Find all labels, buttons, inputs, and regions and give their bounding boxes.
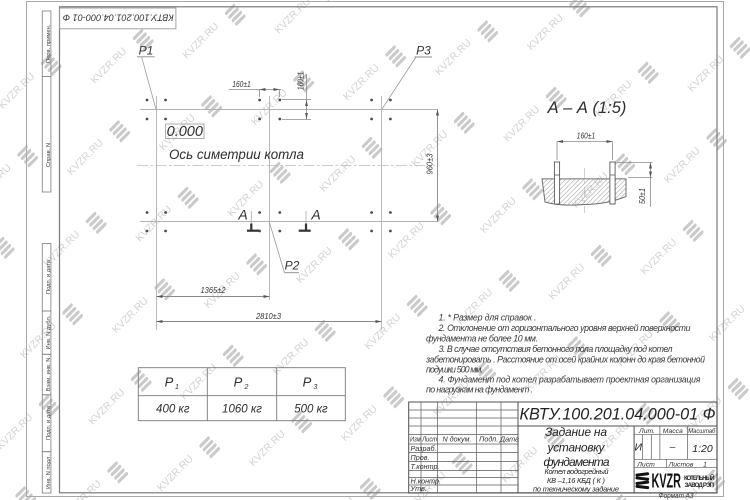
svg-text:Взам. инв. N: Взам. инв. N bbox=[46, 358, 52, 392]
svg-text:KVZR.RU: KVZR.RU bbox=[0, 411, 35, 452]
svg-text:Масса: Масса bbox=[663, 428, 683, 435]
svg-text:160±1: 160±1 bbox=[297, 72, 306, 91]
svg-text:1. * Размер для справок .: 1. * Размер для справок . bbox=[439, 312, 537, 322]
svg-text:KVZR.RU: KVZR.RU bbox=[662, 145, 703, 186]
svg-text:1: 1 bbox=[703, 461, 707, 468]
svg-text:Подп.: Подп. bbox=[479, 435, 498, 444]
svg-text:Перв. примен.: Перв. примен. bbox=[46, 24, 52, 63]
svg-text:KVZR: KVZR bbox=[652, 470, 682, 492]
svg-text:P1: P1 bbox=[139, 44, 154, 58]
svg-text:500 кг: 500 кг bbox=[294, 404, 328, 416]
svg-text:Р: Р bbox=[234, 375, 243, 390]
svg-text:KVZR.RU: KVZR.RU bbox=[88, 45, 129, 86]
svg-text:KVZR.RU: KVZR.RU bbox=[272, 0, 313, 36]
svg-text:P3: P3 bbox=[416, 44, 431, 58]
svg-text:KVZR.RU: KVZR.RU bbox=[362, 311, 403, 352]
svg-text:Справ. N: Справ. N bbox=[46, 143, 52, 167]
svg-text:установку: установку bbox=[547, 440, 606, 454]
svg-text:KVZR.RU: KVZR.RU bbox=[433, 37, 474, 78]
svg-text:Формат А3: Формат А3 bbox=[659, 491, 695, 500]
svg-text:2810±3: 2810±3 bbox=[255, 312, 281, 321]
svg-text:Ось симетрии котла: Ось симетрии котла bbox=[169, 147, 304, 162]
svg-text:по нагрузкам на фундамент .: по нагрузкам на фундамент . bbox=[426, 384, 533, 394]
svg-text:Подп. и дата: Подп. и дата bbox=[46, 405, 52, 440]
svg-text:KVZR.RU: KVZR.RU bbox=[155, 453, 196, 494]
svg-text:KVZR.RU: KVZR.RU bbox=[525, 12, 566, 53]
svg-text:А: А bbox=[310, 207, 320, 223]
svg-text:Изм.Лист: Изм.Лист bbox=[410, 435, 437, 444]
svg-text:KVZR.RU: KVZR.RU bbox=[0, 70, 37, 111]
svg-text:4. Фундамент под котел разраб: 4. Фундамент под котел разрабатывает про… bbox=[439, 374, 701, 384]
svg-text:Инв. N подл.: Инв. N подл. bbox=[46, 455, 52, 489]
svg-text:Листов: Листов bbox=[668, 461, 694, 468]
svg-text:Масштаб: Масштаб bbox=[688, 427, 716, 435]
svg-text:А: А bbox=[237, 207, 247, 223]
svg-text:KVZR.RU: KVZR.RU bbox=[133, 203, 174, 244]
svg-text:0.000: 0.000 bbox=[167, 124, 203, 140]
svg-text:1: 1 bbox=[175, 384, 179, 391]
svg-text:КВТУ.100.201.04.000-01 Ф: КВТУ.100.201.04.000-01 Ф bbox=[520, 405, 716, 424]
svg-text:КОТЕЛЬНЫЙ: КОТЕЛЬНЫЙ bbox=[684, 474, 715, 482]
svg-text:KVZR.RU: KVZR.RU bbox=[341, 62, 382, 103]
svg-text:Р: Р bbox=[303, 375, 312, 390]
svg-text:KVZR.RU: KVZR.RU bbox=[317, 153, 358, 194]
svg-text:KVZR.RU: KVZR.RU bbox=[685, 53, 726, 94]
svg-text:KVZR.RU: KVZR.RU bbox=[18, 320, 59, 361]
svg-text:KVZR.RU: KVZR.RU bbox=[478, 195, 519, 236]
svg-text:KVZR.RU: KVZR.RU bbox=[546, 261, 587, 302]
svg-text:KVZR.RU: KVZR.RU bbox=[707, 303, 748, 344]
svg-text:Лит.: Лит. bbox=[638, 428, 655, 435]
svg-text:KVZR.RU: KVZR.RU bbox=[65, 137, 106, 178]
svg-text:Утв.: Утв. bbox=[410, 484, 427, 493]
svg-text:КВТУ.100.201.04.000-01 Ф: КВТУ.100.201.04.000-01 Ф bbox=[63, 13, 174, 23]
svg-text:фундамента не более 10 мм.: фундамента не более 10 мм. bbox=[426, 334, 538, 344]
svg-text:Разраб.: Разраб. bbox=[411, 444, 437, 453]
svg-text:KVZR.RU: KVZR.RU bbox=[386, 220, 427, 261]
svg-text:N докум.: N докум. bbox=[442, 435, 471, 444]
svg-text:по техническому задание: по техническому задание bbox=[533, 484, 619, 493]
svg-text:Дата: Дата bbox=[499, 435, 519, 444]
svg-text:–: – bbox=[669, 442, 676, 453]
svg-text:1:20: 1:20 bbox=[692, 443, 713, 455]
svg-text:Пров.: Пров. bbox=[411, 453, 430, 462]
svg-text:KVZR.RU: KVZR.RU bbox=[501, 103, 542, 144]
svg-text:160±1: 160±1 bbox=[232, 80, 251, 89]
svg-text:забетонировать . Расстояние о: забетонировать . Расстояние от осей край… bbox=[425, 354, 705, 364]
svg-text:Котел водогрейный: Котел водогрейный bbox=[545, 467, 609, 476]
svg-text:2: 2 bbox=[244, 384, 249, 391]
svg-text:И: И bbox=[635, 442, 643, 454]
svg-text:Р: Р bbox=[165, 375, 174, 390]
svg-text:Подп. и дата: Подп. и дата bbox=[46, 259, 52, 294]
svg-text:KVZR.RU: KVZR.RU bbox=[110, 295, 151, 336]
svg-text:KVZR.RU: KVZR.RU bbox=[180, 20, 221, 61]
svg-text:KVZR.RU: KVZR.RU bbox=[247, 428, 288, 469]
svg-text:P2: P2 bbox=[285, 259, 300, 273]
svg-text:KVZR.RU: KVZR.RU bbox=[0, 162, 14, 203]
svg-text:1365±2: 1365±2 bbox=[201, 286, 226, 295]
svg-text:Лист: Лист bbox=[636, 461, 655, 468]
svg-text:ЗАВОД РЭП: ЗАВОД РЭП bbox=[685, 483, 714, 489]
svg-text:3: 3 bbox=[314, 384, 318, 391]
svg-text:Задание на: Задание на bbox=[545, 425, 607, 439]
svg-text:960±3: 960±3 bbox=[426, 153, 435, 174]
svg-text:3. В случае отсутствия бетонн: 3. В случае отсутствия бетонного пола пл… bbox=[439, 344, 673, 354]
svg-text:подушки 500 мм.: подушки 500 мм. bbox=[426, 364, 483, 374]
svg-text:Т.контр.: Т.контр. bbox=[411, 462, 440, 471]
svg-text:Инв. N дубл.: Инв. N дубл. bbox=[46, 315, 52, 349]
svg-text:160±1: 160±1 bbox=[577, 132, 596, 141]
svg-text:50±1: 50±1 bbox=[638, 188, 647, 204]
svg-text:KVZR.RU: KVZR.RU bbox=[638, 236, 679, 277]
svg-text:KVZR.RU: KVZR.RU bbox=[499, 444, 540, 485]
svg-text:1060 кг: 1060 кг bbox=[222, 404, 262, 416]
svg-text:KVZR.RU: KVZR.RU bbox=[294, 245, 335, 286]
svg-text:400 кг: 400 кг bbox=[156, 404, 190, 416]
svg-text:А – А (1:5): А – А (1:5) bbox=[547, 99, 627, 117]
svg-text:KVZR.RU: KVZR.RU bbox=[315, 494, 356, 500]
svg-text:KVZR.RU: KVZR.RU bbox=[86, 386, 127, 427]
svg-text:2. Отклонение от горизонтальн: 2. Отклонение от горизонтального уровня … bbox=[438, 323, 691, 333]
